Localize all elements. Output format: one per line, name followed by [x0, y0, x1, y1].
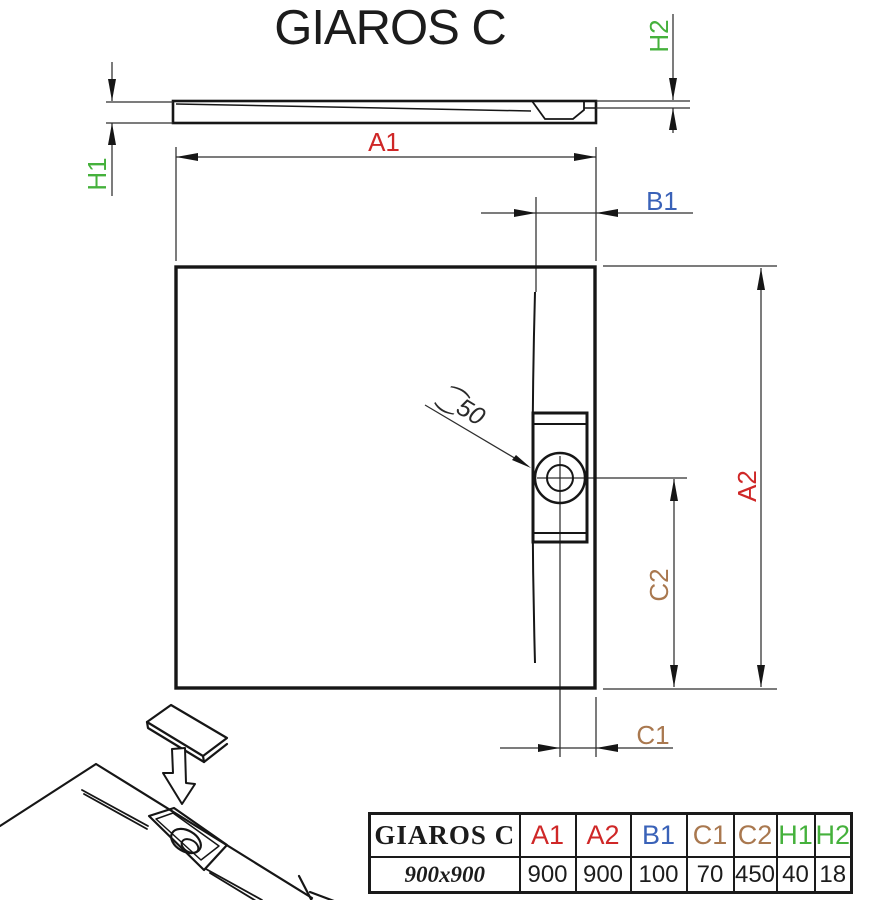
spec-value-h2: 18: [815, 857, 852, 893]
dim-label-c1: C1: [633, 721, 673, 749]
spec-value-b1: 100: [631, 857, 687, 893]
spec-header-h1: H1: [777, 814, 815, 858]
insert-arrow-icon: [163, 748, 195, 804]
spec-table-model-cell: GIAROS C: [370, 814, 520, 858]
spec-header-h2: H2: [815, 814, 852, 858]
cover-plate: [147, 705, 227, 756]
plan-view: [176, 267, 595, 688]
dim-label-a2: A2: [733, 461, 761, 511]
spec-value-h1: 40: [777, 857, 815, 893]
dim-label-a1: A1: [364, 128, 404, 156]
dim-label-h2: H2: [645, 11, 673, 61]
side-view: [173, 101, 596, 123]
spec-table: GIAROS C A1 A2 B1 C1 C2 H1 H2 900x900 90…: [368, 812, 853, 894]
spec-header-c2: C2: [734, 814, 777, 858]
spec-header-b1: B1: [631, 814, 687, 858]
spec-table-value-row: 900x900 900 900 100 70 450 40 18: [370, 857, 852, 893]
spec-table-size-cell: 900x900: [370, 857, 520, 893]
dimension-arrowheads: [108, 78, 765, 752]
page-title: GIAROS C: [255, 0, 525, 56]
spec-value-c2: 450: [734, 857, 777, 893]
dim-label-h1: H1: [83, 149, 111, 199]
dim-label-c2: C2: [645, 560, 673, 610]
spec-header-a1: A1: [520, 814, 576, 858]
spec-value-c1: 70: [687, 857, 734, 893]
dim-label-b1: B1: [642, 187, 682, 215]
spec-table-header-row: GIAROS C A1 A2 B1 C1 C2 H1 H2: [370, 814, 852, 858]
technical-drawing-page: GIAROS C A1 B1 H1 H2 A2 C2 C1 ⁐50 GIAROS…: [0, 0, 880, 900]
drain-detail-sketch: [0, 705, 334, 900]
spec-value-a1: 900: [520, 857, 576, 893]
drawing-linework: [0, 0, 880, 900]
spec-header-a2: A2: [576, 814, 631, 858]
spec-header-c1: C1: [687, 814, 734, 858]
spec-value-a2: 900: [576, 857, 631, 893]
